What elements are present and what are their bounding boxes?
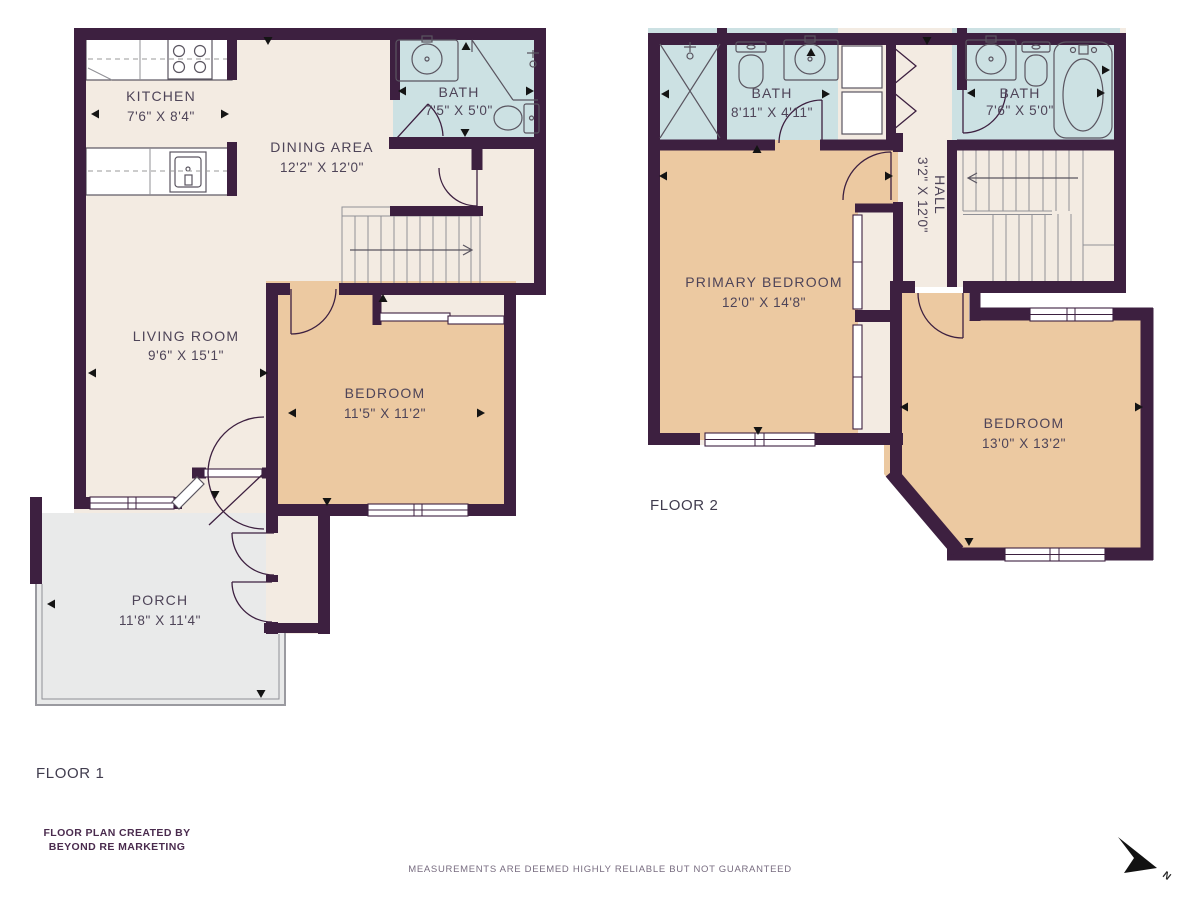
bedroom-window — [1005, 548, 1105, 561]
floor2-bedroom-dims: 13'0" X 13'2" — [982, 436, 1066, 451]
living-room-window — [90, 497, 174, 509]
floor2-bath-left-floor — [648, 28, 838, 148]
porch-dims: 11'8" X 11'4" — [119, 613, 201, 628]
floor1-title: FLOOR 1 — [36, 765, 104, 782]
primary-bedroom-label: PRIMARY BEDROOM — [685, 274, 843, 290]
living-room-dims: 9'6" X 15'1" — [148, 348, 224, 363]
primary-bedroom-window — [705, 433, 815, 446]
bedroom-window — [368, 504, 468, 516]
primary-bedroom-dims: 12'0" X 14'8" — [722, 295, 806, 310]
living-room-label: LIVING ROOM — [133, 328, 240, 344]
floor1-bath-label: BATH — [438, 84, 479, 100]
dining-area-dims: 12'2" X 12'0" — [280, 160, 364, 175]
floor1-bath-dims: 7'5" X 5'0" — [425, 103, 493, 118]
hall-label: HALL — [932, 175, 948, 215]
floor-plan-page: KITCHEN 7'6" X 8'4" DINING AREA 12'2" X … — [0, 0, 1200, 900]
north-label: N — [1160, 870, 1172, 883]
north-arrow-icon — [1118, 837, 1157, 873]
floor2-bedroom-label: BEDROOM — [984, 415, 1065, 431]
kitchen-label: KITCHEN — [126, 88, 196, 104]
floor2-bath-right-label: BATH — [999, 85, 1040, 101]
floor2-bath-right-dims: 7'6" X 5'0" — [986, 103, 1054, 118]
floor1-bedroom-label: BEDROOM — [345, 385, 426, 401]
floor2-title: FLOOR 2 — [650, 497, 718, 514]
porch-label: PORCH — [132, 592, 189, 608]
vestibule-opening — [204, 469, 262, 477]
floor1-plan: KITCHEN 7'6" X 8'4" DINING AREA 12'2" X … — [36, 28, 546, 782]
hall-dims: 3'2" X 12'0" — [915, 157, 930, 233]
floor2-plan: BATH 8'11" X 4'11" BATH 7'6" X 5'0" HALL… — [648, 28, 1153, 561]
compass: N — [1118, 837, 1173, 883]
bedroom-window — [1030, 308, 1113, 321]
kitchen-dims: 7'6" X 8'4" — [127, 109, 195, 124]
dining-area-label: DINING AREA — [270, 139, 373, 155]
disclaimer-text: MEASUREMENTS ARE DEEMED HIGHLY RELIABLE … — [408, 864, 792, 875]
credit-line-1: FLOOR PLAN CREATED BY — [43, 827, 190, 839]
floor1-bedroom-dims: 11'5" X 11'2" — [344, 406, 426, 421]
floor-plan-image: KITCHEN 7'6" X 8'4" DINING AREA 12'2" X … — [0, 0, 1200, 900]
floor2-bath-left-dims: 8'11" X 4'11" — [731, 105, 813, 120]
floor2-bath-left-label: BATH — [751, 85, 792, 101]
linen-closet-shelf — [842, 92, 882, 134]
credit-line-2: BEYOND RE MARKETING — [49, 841, 186, 853]
linen-closet-shelf — [842, 46, 882, 88]
porch-floor — [36, 513, 286, 706]
